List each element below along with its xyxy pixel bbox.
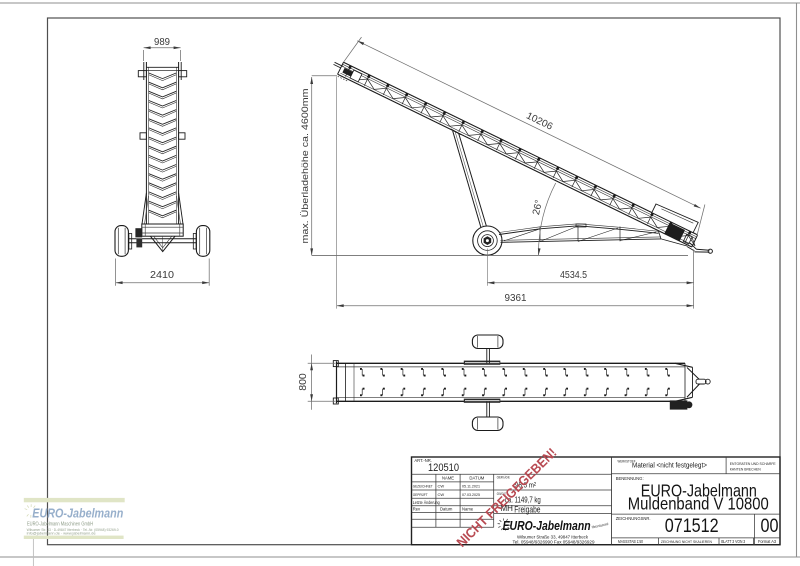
svg-text:Muldenband V 10800: Muldenband V 10800: [628, 494, 769, 514]
svg-text:CW: CW: [438, 492, 445, 497]
svg-text:989: 989: [154, 37, 170, 48]
svg-text:BLATT 3 VON 3: BLATT 3 VON 3: [721, 539, 746, 544]
svg-text:CW: CW: [438, 484, 445, 489]
svg-text:EURO-Jabelmann Maschinen GmbH: EURO-Jabelmann Maschinen GmbH: [27, 521, 93, 527]
svg-text:00: 00: [761, 516, 779, 537]
svg-text:OBERFLÄCHE: OBERFLÄCHE: [497, 475, 510, 479]
svg-text:ZEICHNUNGSNR.: ZEICHNUNGSNR.: [616, 516, 651, 521]
svg-text:EURO-Jabelmann: EURO-Jabelmann: [503, 519, 591, 533]
svg-text:ENTGRATEN UND SCHARFE: ENTGRATEN UND SCHARFE: [730, 462, 776, 466]
svg-text:4534.5: 4534.5: [560, 270, 587, 281]
svg-text:800: 800: [298, 373, 309, 391]
svg-text:GEZEICHNET: GEZEICHNET: [413, 484, 433, 489]
svg-text:ZEICHNUNG NICHT SKALIEREN: ZEICHNUNG NICHT SKALIEREN: [661, 539, 712, 544]
svg-text:MASSSTAB 1:50: MASSSTAB 1:50: [618, 539, 644, 544]
svg-text:info@jabelmann.de · www.jabelm: info@jabelmann.de · www.jabelmann.de: [27, 531, 96, 535]
svg-text:Letzte Änderung: Letzte Änderung: [413, 500, 440, 505]
svg-text:Rev: Rev: [413, 507, 421, 512]
svg-text:2410: 2410: [150, 270, 174, 281]
svg-text:max. Überladehöhe ca. 4600mm: max. Überladehöhe ca. 4600mm: [300, 88, 311, 243]
svg-text:120510: 120510: [428, 462, 459, 474]
svg-text:Format A3: Format A3: [758, 539, 777, 544]
svg-text:DATUM: DATUM: [469, 476, 485, 481]
svg-text:NAME: NAME: [442, 476, 454, 481]
svg-text:Material <nicht festgelegt>: Material <nicht festgelegt>: [632, 462, 707, 469]
svg-text:071512: 071512: [665, 516, 719, 537]
svg-text:Name: Name: [462, 507, 474, 512]
svg-text:EURO-Jabelmann: EURO-Jabelmann: [32, 505, 123, 520]
svg-text:Datum: Datum: [440, 507, 453, 512]
svg-text:BENENNUNG:: BENENNUNG:: [616, 476, 644, 481]
svg-text:Tel. 05948/9326990 Fax 05948/9: Tel. 05948/9326990 Fax 05948/9326929: [513, 539, 595, 544]
svg-text:05.11.2021: 05.11.2021: [462, 484, 481, 489]
svg-text:Freigabe: Freigabe: [514, 504, 540, 514]
svg-text:KANTEN BRECHEN: KANTEN BRECHEN: [730, 467, 761, 471]
svg-text:07.03.2025: 07.03.2025: [462, 492, 481, 497]
svg-text:9361: 9361: [505, 293, 527, 304]
svg-text:GEPRÜFT: GEPRÜFT: [413, 492, 428, 497]
